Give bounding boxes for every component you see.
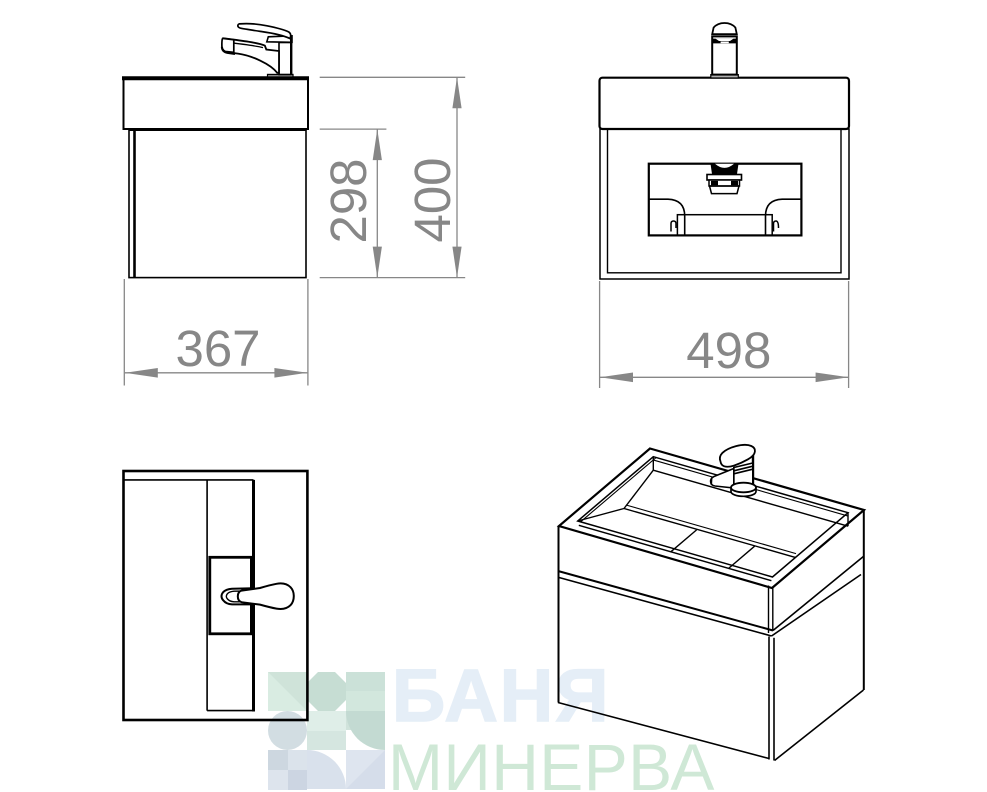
svg-text:БАНЯ: БАНЯ: [392, 654, 610, 737]
svg-text:400: 400: [404, 157, 461, 242]
svg-text:298: 298: [320, 158, 377, 243]
svg-text:498: 498: [686, 322, 771, 379]
svg-text:МИНЕРВА: МИНЕРВА: [388, 730, 715, 792]
svg-text:367: 367: [175, 320, 260, 377]
